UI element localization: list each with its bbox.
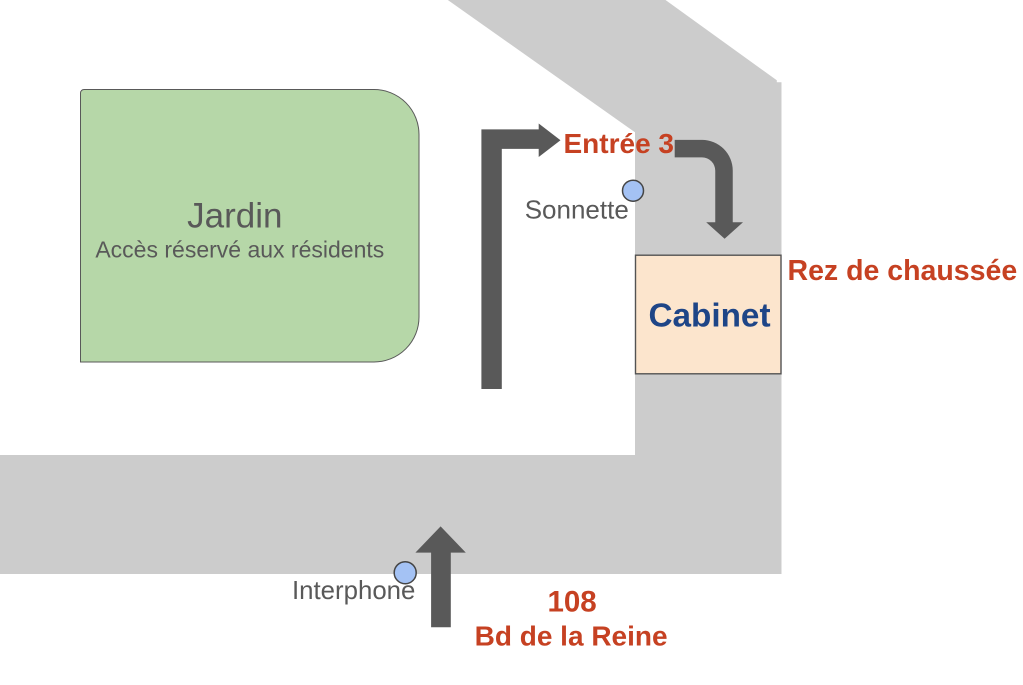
svg-text:Sonnette: Sonnette	[525, 194, 629, 224]
svg-text:Jardin: Jardin	[187, 196, 282, 235]
svg-text:Interphone: Interphone	[292, 577, 415, 605]
svg-text:Bd de la Reine: Bd de la Reine	[475, 620, 668, 651]
svg-text:108: 108	[547, 586, 596, 619]
svg-text:Cabinet: Cabinet	[648, 298, 770, 335]
svg-text:Rez de chaussée: Rez de chaussée	[788, 255, 1018, 287]
svg-text:Entrée 3: Entrée 3	[564, 128, 675, 159]
svg-text:Accès réservé aux résidents: Accès réservé aux résidents	[95, 237, 384, 263]
